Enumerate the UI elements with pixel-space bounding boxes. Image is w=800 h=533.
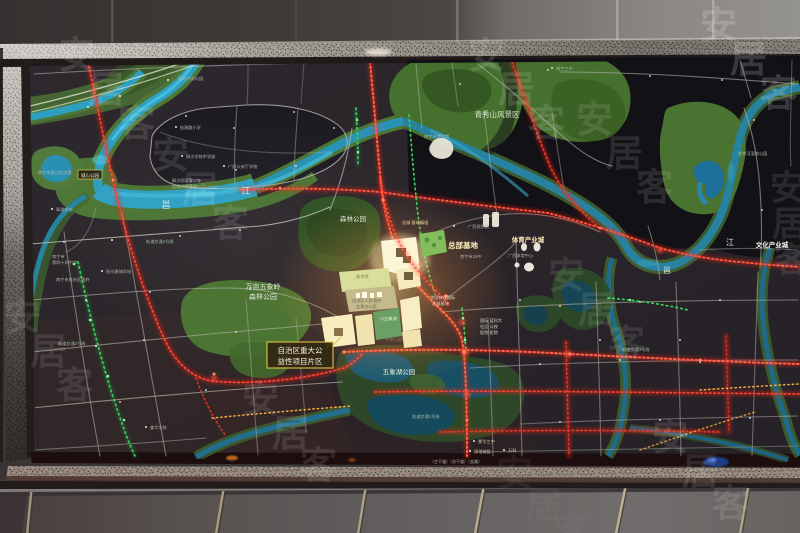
svg-text:邕: 邕 (663, 265, 671, 275)
svg-text:小五象湖: 小五象湖 (380, 315, 397, 322)
svg-text:轨道交通1号线: 轨道交通1号线 (412, 413, 440, 420)
svg-text:广西体育中心: 广西体育中心 (508, 252, 534, 259)
svg-text:南宁市良庆区政府: 南宁市良庆区政府 (56, 276, 90, 283)
svg-text:森林公园: 森林公园 (340, 214, 366, 223)
svg-text:客: 客 (554, 511, 591, 533)
svg-text:南宁市邕江防洪堤: 南宁市邕江防洪堤 (38, 169, 72, 176)
svg-text:社区 公校: 社区 公校 (480, 323, 499, 330)
svg-text:客: 客 (608, 323, 645, 364)
svg-text:南宁市24中: 南宁市24中 (460, 253, 481, 260)
svg-text:居: 居 (772, 205, 800, 244)
svg-text:南宁市博物馆: 南宁市博物馆 (424, 133, 449, 140)
svg-text:益性项目片区: 益性项目片区 (278, 356, 323, 366)
svg-text:自治区重大公: 自治区重大公 (278, 345, 323, 355)
svg-text:广西公安厅学校: 广西公安厅学校 (228, 163, 258, 170)
svg-text:那考河湿地公园: 那考河湿地公园 (738, 150, 767, 157)
svg-text:柳沙学校中学部: 柳沙学校中学部 (186, 153, 215, 160)
svg-text:客: 客 (528, 103, 565, 144)
svg-text:客: 客 (760, 73, 797, 114)
svg-text:万亩五象岭: 万亩五象岭 (246, 282, 281, 291)
svg-text:中央公园: 中央公园 (385, 336, 402, 343)
svg-text:南宁市: 南宁市 (52, 253, 65, 260)
svg-text:城心公园: 城心公园 (81, 172, 99, 179)
svg-text:总部基地: 总部基地 (432, 300, 450, 307)
svg-text:客: 客 (636, 167, 673, 208)
svg-text:客: 客 (300, 445, 337, 486)
svg-text:客: 客 (774, 240, 800, 280)
svg-text:江: 江 (241, 186, 250, 196)
svg-text:南宁三中: 南宁三中 (556, 65, 573, 72)
svg-text:第四十四中学: 第四十四中学 (52, 259, 77, 266)
svg-text:轨道交通4号线: 轨道交通4号线 (146, 238, 174, 245)
svg-text:绿地城投: 绿地城投 (474, 448, 491, 455)
svg-text:美华学校: 美华学校 (150, 424, 168, 431)
svg-text:安: 安 (770, 169, 800, 208)
svg-text:邕: 邕 (161, 199, 170, 210)
svg-text:江: 江 (726, 238, 734, 247)
svg-text:中国铁建国际: 中国铁建国际 (430, 294, 455, 301)
svg-text:凤岭冲沟公园: 凤岭冲沟公园 (178, 75, 203, 82)
svg-text:桂雅路小学: 桂雅路小学 (180, 124, 201, 131)
svg-text:景华三中: 景华三中 (478, 438, 495, 445)
svg-text:客: 客 (118, 103, 155, 144)
svg-text:国际 蓝科大: 国际 蓝科大 (480, 317, 502, 324)
svg-text:五象办公区: 五象办公区 (356, 303, 377, 310)
svg-text:体育产业城: 体育产业城 (512, 235, 545, 244)
svg-text:美术馆: 美术馆 (356, 273, 369, 280)
svg-text:客: 客 (212, 203, 249, 244)
svg-text:客: 客 (712, 483, 749, 524)
svg-text:森林公园: 森林公园 (249, 292, 277, 301)
svg-text:五象湖公园: 五象湖公园 (383, 367, 416, 376)
svg-text:〔主干道〕〔次干道〕〔支路〕: 〔主干道〕〔次干道〕〔支路〕 (430, 458, 482, 464)
svg-text:广西规划馆: 广西规划馆 (468, 223, 489, 230)
svg-text:翠湖学校: 翠湖学校 (56, 206, 74, 213)
svg-text:医院 医院: 医院 医院 (480, 329, 499, 336)
svg-text:自治区人民政府: 自治区人民政府 (352, 297, 381, 304)
svg-text:总部基地: 总部基地 (448, 240, 478, 250)
svg-text:总部 基地编组: 总部 基地编组 (402, 219, 428, 226)
svg-text:青秀山风景区: 青秀山风景区 (475, 109, 520, 119)
svg-text:客: 客 (56, 365, 93, 406)
svg-text:阳光康城学校: 阳光康城学校 (106, 268, 132, 275)
